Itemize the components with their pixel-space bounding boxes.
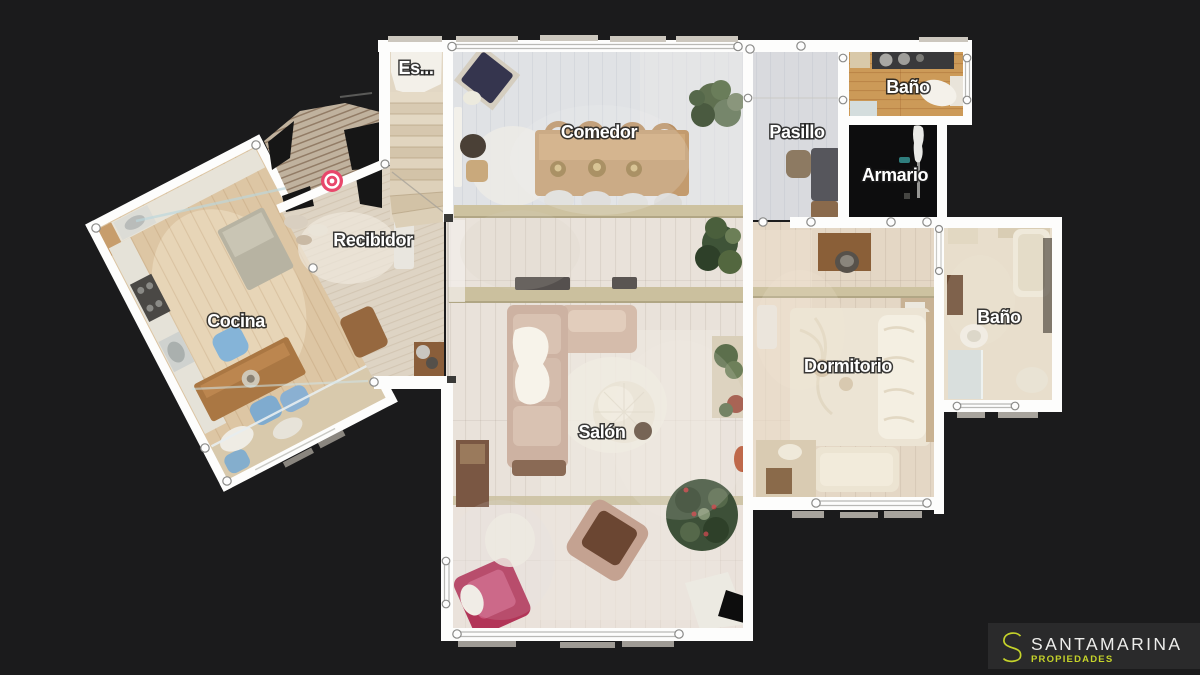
svg-text:Baño: Baño [886, 77, 930, 97]
svg-text:SANTAMARINA: SANTAMARINA [1031, 634, 1183, 654]
svg-text:Armario: Armario [862, 165, 929, 185]
svg-text:Recibidor: Recibidor [333, 230, 413, 250]
svg-text:Baño: Baño [977, 307, 1021, 327]
svg-text:Comedor: Comedor [561, 122, 638, 142]
svg-text:Cocina: Cocina [207, 311, 266, 331]
svg-text:PROPIEDADES: PROPIEDADES [1031, 654, 1113, 665]
svg-text:Pasillo: Pasillo [769, 122, 825, 142]
svg-text:Dormitorio: Dormitorio [804, 356, 892, 376]
svg-text:Salón: Salón [578, 422, 625, 442]
svg-text:Es...: Es... [398, 58, 433, 78]
